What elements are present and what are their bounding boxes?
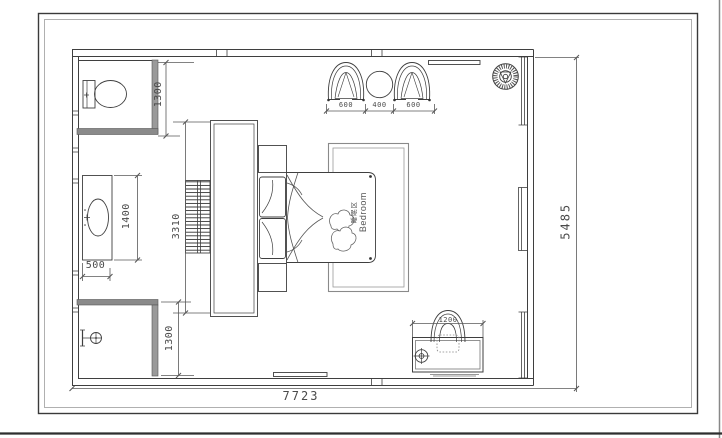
vanity-sink [83,176,113,261]
nightstand-top [259,146,287,173]
dim-vanity-length: 1400 [122,196,133,236]
toilet [83,81,127,109]
curtain-box [429,61,481,65]
pillow-bottom [260,219,286,259]
pillow-top [260,177,286,217]
window-right-wall [519,57,528,378]
headboard-cabinet [211,121,258,317]
dim-overall-width: 7723 [271,390,331,403]
dim-toilet-depth: 1300 [154,74,165,114]
dim-side-table: 400 [365,102,395,109]
dim-armchair-left: 600 [331,102,361,109]
floor-plan-sheet: 1300 1400 500 3310 1300 600 400 600 1200… [0,0,722,438]
nightstand-bottom [259,264,287,292]
room-label-en: Bedroom [359,188,368,236]
dim-vanity-width: 500 [76,261,116,272]
desk [413,338,484,377]
dim-armchair-right: 600 [399,102,429,109]
coffee-table [366,71,392,97]
shower-head [80,330,102,346]
dim-overall-depth: 5485 [560,191,573,251]
potted-plant [493,64,519,90]
dim-desk-length: 1200 [433,317,463,324]
armchair-right [393,63,431,102]
toilet-partition-walls [77,60,158,135]
dim-headboard-length: 3310 [172,206,183,246]
room-label: 睡眠区 Bedroom [352,188,368,236]
door-threshold [274,373,328,377]
armchair-left [327,63,365,102]
tv-unit-hatch [186,181,211,254]
dim-shower-depth: 1300 [164,318,175,358]
